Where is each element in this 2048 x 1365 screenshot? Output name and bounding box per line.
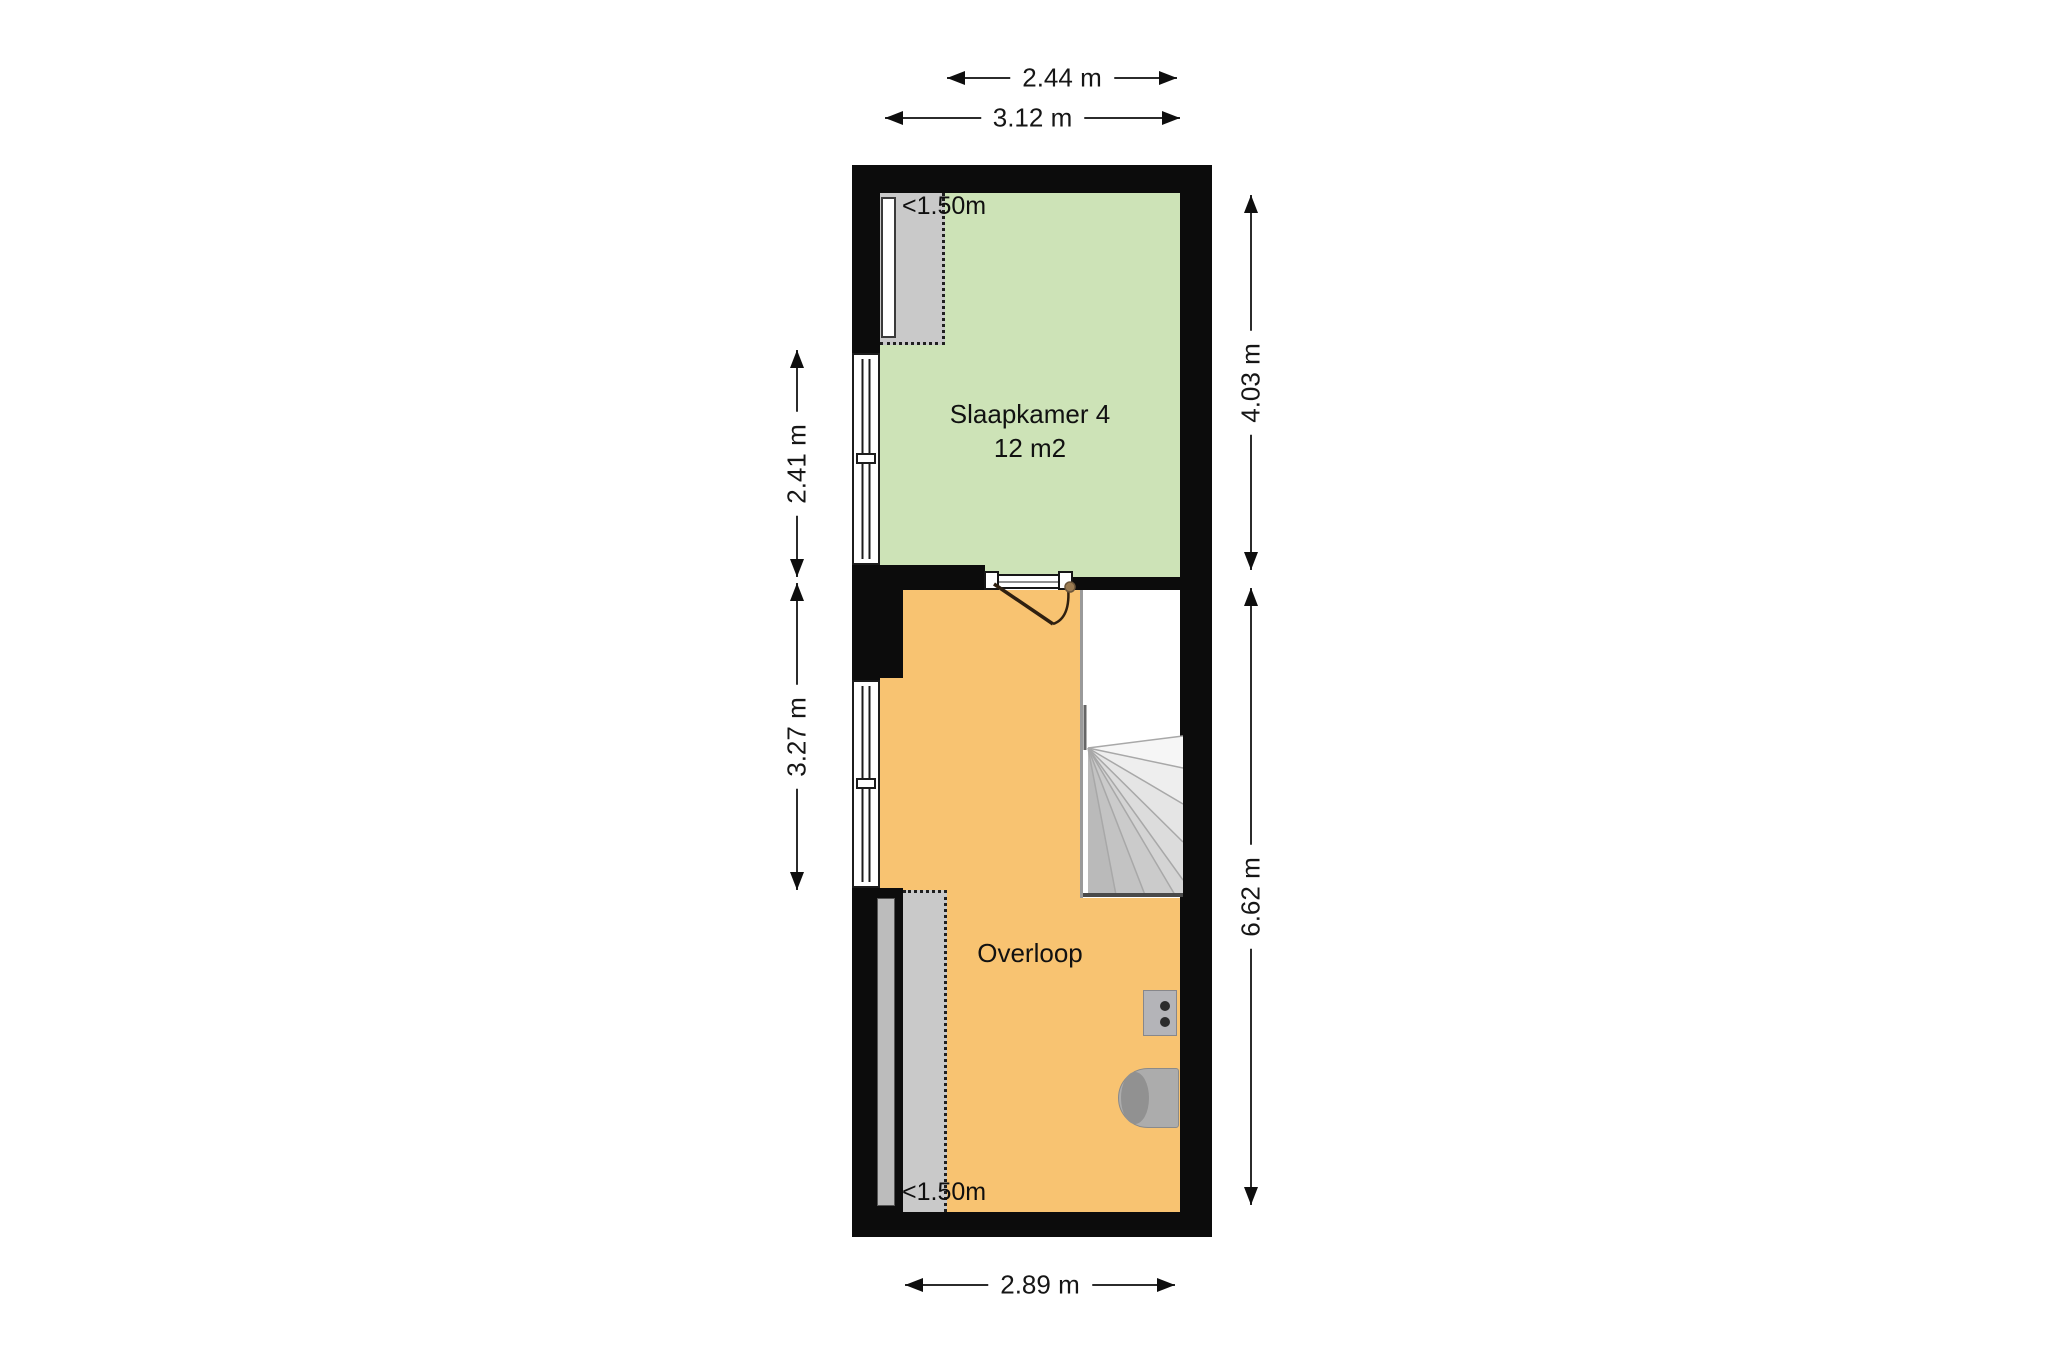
window-lower-left [852,680,880,888]
dimension-bottom-label: 2.89 m [988,1270,1092,1301]
dimension-right-lower-label: 6.62 m [1236,845,1267,949]
stairs-icon [1083,590,1183,898]
ventilation-unit [1143,990,1177,1036]
stairwell [1080,590,1180,898]
room-name: Overloop [880,937,1180,971]
window-upper-left [852,353,880,565]
knee-wall-top [881,197,896,338]
ventilation-knob [1160,1001,1170,1011]
dimension-bottom: 2.89 m [905,1284,1175,1286]
wall-top [852,165,1212,193]
room-label-slaapkamer-4: Slaapkamer 4 12 m2 [880,398,1180,466]
dimension-right-upper-label: 4.03 m [1236,331,1267,435]
dimension-right-lower: 6.62 m [1250,588,1252,1205]
door-swing-icon [978,572,1090,682]
dimension-left-lower-label: 3.27 m [782,685,813,789]
dimension-top-inner: 2.44 m [947,77,1177,79]
dimension-left-upper-label: 2.41 m [782,412,813,516]
floor-plan-canvas: 2.44 m 3.12 m 2.41 m 3.27 m 4.03 m 6.62 … [0,0,2048,1365]
boiler-cap [1121,1072,1149,1124]
low-headroom-label-top: <1.50m [902,192,986,221]
window-divider [856,453,876,464]
ventilation-knob [1160,1017,1170,1027]
dimension-top-outer: 3.12 m [885,117,1180,119]
window-divider [856,778,876,789]
dimension-left-upper: 2.41 m [796,350,798,577]
boiler [1118,1068,1179,1128]
room-area: 12 m2 [880,432,1180,466]
dimension-right-upper: 4.03 m [1250,195,1252,570]
wall-bottom [852,1212,1212,1237]
wall-pier-middle-left [852,577,903,678]
wall-right [1180,165,1212,1237]
room-name: Slaapkamer 4 [880,398,1180,432]
room-label-overloop: Overloop [880,937,1180,971]
dimension-left-lower: 3.27 m [796,583,798,890]
dimension-top-outer-label: 3.12 m [981,103,1085,134]
low-headroom-label-bottom: <1.50m [902,1178,986,1207]
dimension-top-inner-label: 2.44 m [1010,63,1114,94]
